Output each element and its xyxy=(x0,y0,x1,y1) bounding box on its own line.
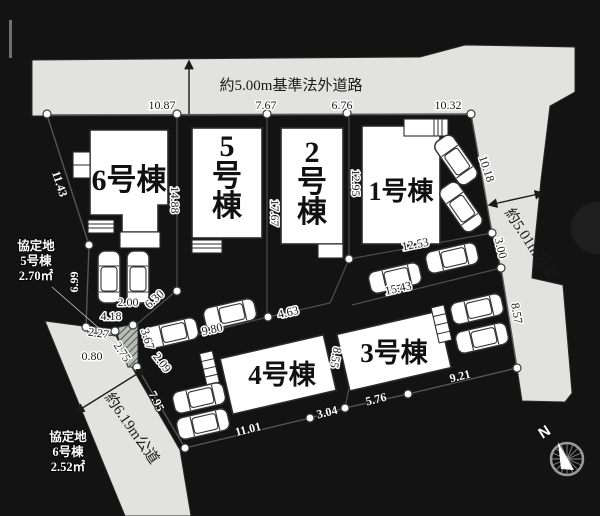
dimension-label: 0.80 xyxy=(82,349,103,363)
dimension-label: 17.67 xyxy=(268,200,282,227)
building-label-1: 1号棟 xyxy=(368,177,434,206)
dimension-label: 7.67 xyxy=(256,98,277,112)
edge-artifact xyxy=(9,20,12,58)
agreement-area-value: 2.52㎡ xyxy=(51,459,86,474)
building-label-3: 3号棟 xyxy=(360,338,428,368)
agreement-label-5: 協定地 5号棟 2.70㎡ xyxy=(17,238,55,283)
dimension-label: 2.00 xyxy=(118,295,139,309)
dimension-label: 10.32 xyxy=(435,98,462,112)
building-2: 2号棟 xyxy=(281,128,343,258)
building-5: 5号棟 xyxy=(192,128,262,238)
dimension-label: 14.88 xyxy=(168,187,182,214)
agreement-label-6: 協定地 6号棟 2.52㎡ xyxy=(49,429,87,474)
agreement-building: 5号棟 xyxy=(20,253,52,268)
dimension-label: 6.76 xyxy=(332,98,353,112)
site-plan-page: 6号棟 5号棟 2号棟 1号棟 4号棟 xyxy=(0,0,600,516)
agreement-title: 協定地 xyxy=(17,238,55,253)
agreement-area-value: 2.70㎡ xyxy=(19,268,54,283)
agreement-title: 協定地 xyxy=(49,429,87,444)
agreement-building: 6号棟 xyxy=(52,444,84,459)
road-label-top: 約5.00m基準法外道路 xyxy=(220,77,363,94)
building-label-6: 6号棟 xyxy=(92,164,168,197)
building-label-4: 4号棟 xyxy=(248,360,316,390)
dimension-label: 10.87 xyxy=(149,98,176,112)
dimension-label: 12.95 xyxy=(349,170,363,197)
stairs-6 xyxy=(88,220,114,233)
dimension-label: 6.99 xyxy=(67,272,81,293)
dimension-label: 2.27 xyxy=(87,325,110,342)
site-plan-svg: 6号棟 5号棟 2号棟 1号棟 4号棟 xyxy=(0,0,600,516)
building-1: 1号棟 xyxy=(362,119,448,244)
dimension-label: 4.18 xyxy=(101,309,122,323)
stairs-5 xyxy=(192,240,222,253)
